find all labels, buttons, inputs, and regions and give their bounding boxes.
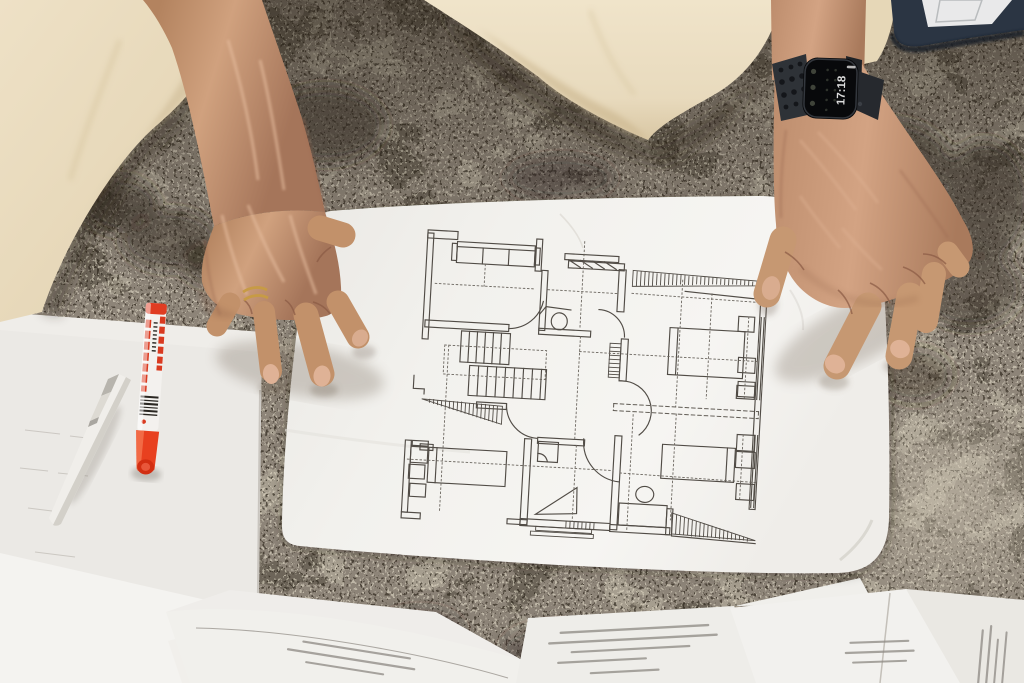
svg-text:17:18: 17:18 <box>835 75 848 105</box>
